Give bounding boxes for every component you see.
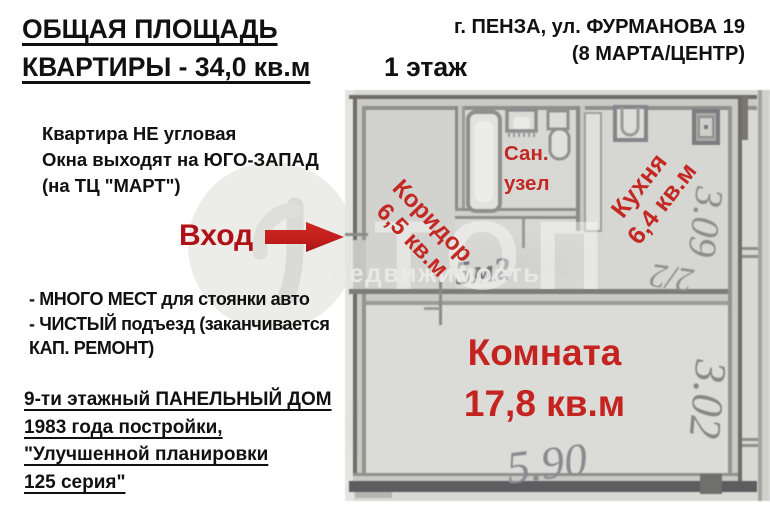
- svg-text:3.02: 3.02: [680, 357, 737, 441]
- svg-text:5.90: 5.90: [504, 433, 590, 493]
- svg-text:2/2: 2/2: [648, 256, 696, 299]
